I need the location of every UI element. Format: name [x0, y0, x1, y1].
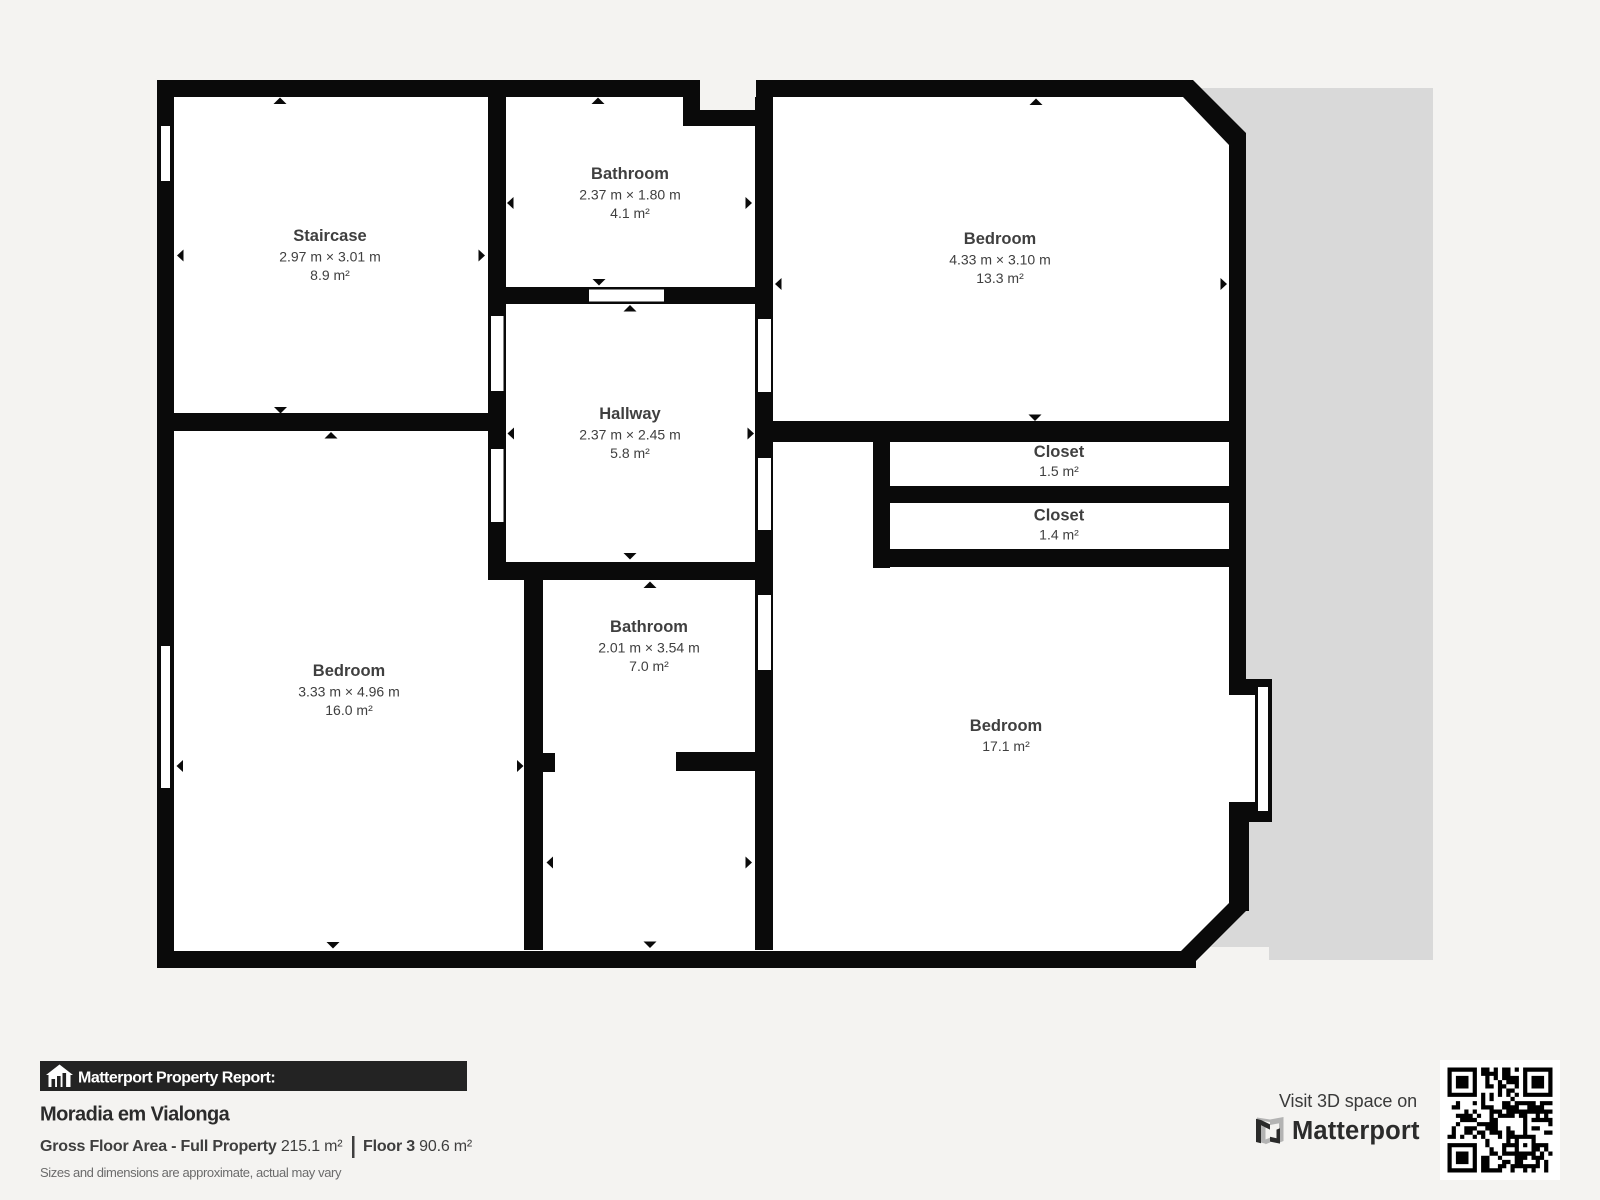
svg-text:5.8 m²: 5.8 m² — [610, 445, 650, 461]
svg-text:2.97 m × 3.01 m: 2.97 m × 3.01 m — [279, 249, 381, 265]
svg-text:2.37 m × 1.80 m: 2.37 m × 1.80 m — [579, 187, 681, 203]
svg-text:7.0 m²: 7.0 m² — [629, 658, 669, 674]
svg-text:Floor 3 90.6 m²: Floor 3 90.6 m² — [363, 1138, 473, 1155]
svg-text:Visit 3D space on: Visit 3D space on — [1279, 1091, 1417, 1111]
svg-text:4.1 m²: 4.1 m² — [610, 205, 650, 221]
svg-text:Closet: Closet — [1034, 507, 1085, 525]
svg-text:Bedroom: Bedroom — [313, 662, 385, 680]
svg-text:Sizes and dimensions are appro: Sizes and dimensions are approximate, ac… — [40, 1165, 342, 1180]
svg-text:17.1 m²: 17.1 m² — [982, 738, 1030, 754]
svg-text:8.9 m²: 8.9 m² — [310, 267, 350, 283]
svg-text:Bedroom: Bedroom — [970, 717, 1042, 735]
svg-text:13.3 m²: 13.3 m² — [976, 270, 1024, 286]
svg-text:Staircase: Staircase — [293, 227, 366, 245]
svg-text:1.5 m²: 1.5 m² — [1039, 463, 1079, 479]
svg-text:1.4 m²: 1.4 m² — [1039, 527, 1079, 543]
svg-text:16.0 m²: 16.0 m² — [325, 702, 373, 718]
svg-text:Gross Floor Area - Full Proper: Gross Floor Area - Full Property 215.1 m… — [40, 1138, 343, 1155]
svg-text:Moradia em Vialonga: Moradia em Vialonga — [40, 1104, 231, 1126]
svg-text:Matterport: Matterport — [1292, 1117, 1420, 1145]
svg-text:2.37 m × 2.45 m: 2.37 m × 2.45 m — [579, 427, 681, 443]
svg-text:4.33 m × 3.10 m: 4.33 m × 3.10 m — [949, 252, 1051, 268]
svg-text:2.01 m × 3.54 m: 2.01 m × 3.54 m — [598, 640, 700, 656]
svg-text:3.33 m × 4.96 m: 3.33 m × 4.96 m — [298, 684, 400, 700]
svg-text:Hallway: Hallway — [599, 405, 661, 423]
svg-text:Bathroom: Bathroom — [610, 618, 688, 636]
svg-text:Bathroom: Bathroom — [591, 165, 669, 183]
svg-text:Bedroom: Bedroom — [964, 230, 1036, 248]
svg-text:Closet: Closet — [1034, 443, 1085, 461]
svg-text:Matterport Property Report:: Matterport Property Report: — [78, 1070, 275, 1087]
